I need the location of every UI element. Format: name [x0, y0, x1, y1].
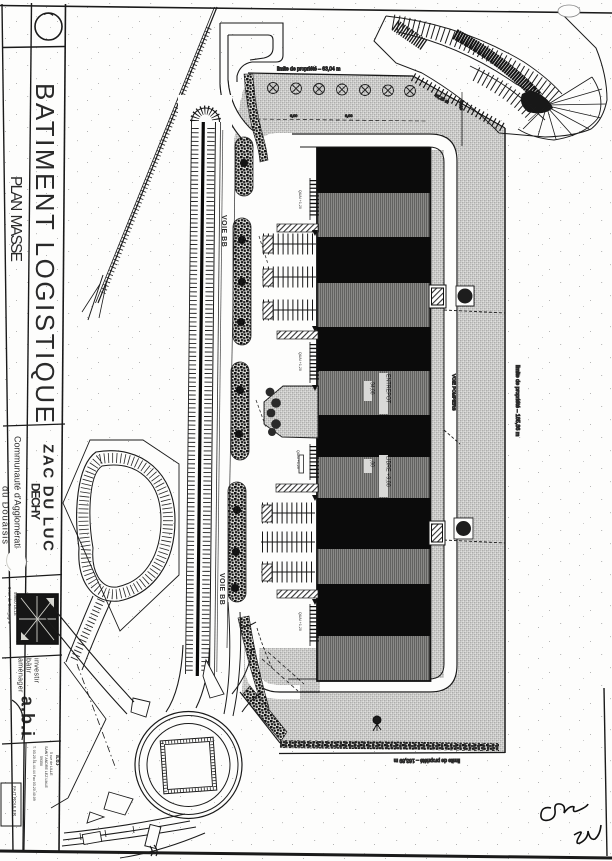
svg-text:Communauté d'Agglomérati: Communauté d'Agglomérati — [13, 436, 23, 548]
svg-text:QUAI +1,20: QUAI +1,20 — [298, 190, 302, 209]
svg-text:limite de propriété – 63,04 m: limite de propriété – 63,04 m — [277, 67, 340, 73]
svg-text:FAIT ROULER: FAIT ROULER — [12, 786, 17, 817]
svg-text:QUAI +1,20: QUAI +1,20 — [296, 450, 300, 469]
svg-text:VOIE BB: VOIE BB — [220, 215, 227, 247]
svg-text:QUAI +1,20: QUAI +1,20 — [298, 352, 302, 371]
svg-text:59350: 59350 — [39, 756, 43, 766]
svg-text:SAINT ANDRE LEZ LILLE: SAINT ANDRE LEZ LILLE — [44, 746, 48, 788]
svg-text:5 rue de Bourgogne: 5 rue de Bourgogne — [7, 587, 12, 625]
svg-text:LIBRE +9,00: LIBRE +9,00 — [385, 456, 391, 487]
svg-text:6,00: 6,00 — [345, 114, 352, 118]
svg-text:T. 03.20.51.44.44 Fax 03: T. 03.20.51.44.44 Fax 03.20.40.09 — [32, 746, 36, 801]
svg-text:aménager: aménager — [17, 658, 24, 693]
svg-text:QUAI +1,20: QUAI +1,20 — [298, 612, 302, 631]
svg-text:DECHY: DECHY — [29, 483, 43, 520]
svg-text:bâtir: bâtir — [25, 658, 32, 674]
svg-text:5 rue de LILLE: 5 rue de LILLE — [49, 752, 53, 776]
svg-text:,00: ,00 — [369, 460, 375, 467]
svg-text:limite de propriété – 185,86 m: limite de propriété – 185,86 m — [514, 365, 520, 437]
svg-text:BATIMENT LOGISTIQUE: BATIMENT LOGISTIQUE — [30, 83, 60, 423]
svg-text:du Douaisis: du Douaisis — [0, 486, 11, 544]
svg-text:VOIE POMPIERS: VOIE POMPIERS — [452, 374, 457, 411]
svg-text:ENTREPOT: ENTREPOT — [385, 374, 391, 404]
svg-text:34,00: 34,00 — [369, 382, 375, 395]
svg-text:PLAN MASSE: PLAN MASSE — [7, 176, 24, 262]
svg-text:a.b.i: a.b.i — [54, 755, 60, 766]
svg-text:a.b.i: a.b.i — [18, 696, 38, 737]
svg-text:limite de propriété – 163,89 m: limite de propriété – 163,89 m — [394, 757, 460, 763]
svg-text:VOIE BB: VOIE BB — [218, 573, 225, 605]
svg-text:investir: investir — [33, 658, 40, 684]
svg-text:6,00: 6,00 — [290, 114, 297, 118]
svg-text:45,10: 45,10 — [459, 100, 464, 111]
